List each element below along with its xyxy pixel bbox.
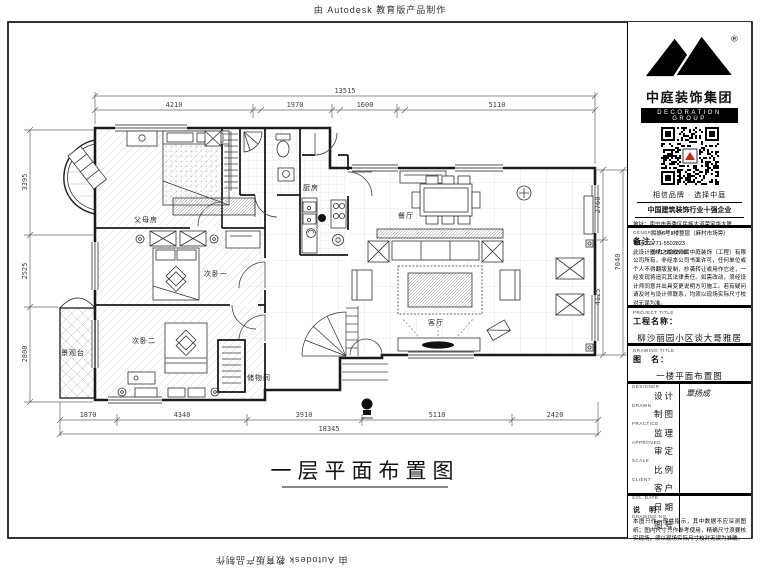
field-row-drawn: DRAWN制图: [628, 403, 751, 422]
field-label: 设计: [632, 390, 675, 402]
final-note-section: 说 明： 本图只作一般性指示，其中数据不应深测图纸；图内尺寸只作参考使用，精确尺…: [628, 496, 751, 547]
dim-right-0: 2760: [594, 197, 602, 214]
fields-section: DESIGNER设计 覃扬成 DRAWN制图 PRACTICE监理 APPROV…: [628, 384, 751, 496]
general-note-section: GENERAL NOTE 备注： 此设计图纸之版权归属中庭装饰（工程）有限公司所…: [628, 228, 751, 308]
drawing-title-section: DRAWING TITLE 图 名： 一楼平面布置图: [628, 346, 751, 384]
entry-plant-icon: [361, 399, 373, 419]
dim-left-2: 2800: [21, 346, 29, 363]
label-parents-room: 父母房: [134, 215, 158, 224]
dim-left-1: 2525: [21, 263, 29, 280]
field-row-client: CLIENT客户: [628, 477, 751, 496]
brand-section: ® 中庭装饰集团 DECORATION GROUP 相信品牌 · 选择中: [628, 22, 751, 228]
brand-logo-mountain-icon: ®: [642, 32, 738, 80]
brand-honor: 中国建筑装饰行业十强企业: [635, 203, 744, 218]
drawing-title-value: 一楼平面布置图: [633, 370, 746, 382]
dim-top-total: 13515: [334, 87, 355, 95]
plan-title-group: 一层平面布置图: [271, 459, 460, 487]
label-kitchen: 厨房: [303, 183, 319, 192]
brand-name: 中庭装饰集团: [633, 87, 746, 106]
field-label: 客户: [632, 482, 675, 494]
drawing-title-label: 图 名：: [633, 354, 746, 365]
label-deck: 景观台: [61, 348, 85, 357]
dim-left-0: 3395: [21, 174, 29, 191]
dim-bottom-2: 3910: [296, 411, 313, 419]
field-row-practice: PRACTICE监理: [628, 421, 751, 440]
svg-text:®: ®: [731, 34, 738, 44]
project-title-value: 柳沙丽园小区谈大哥雅居: [633, 332, 746, 344]
general-note-label: 备注：: [633, 236, 746, 247]
field-label: 比例: [632, 464, 675, 476]
dim-right-1: 4125: [594, 289, 602, 306]
project-title-section: PROJECT TITLE 工程名称： 柳沙丽园小区谈大哥雅居: [628, 308, 751, 346]
field-row-designer: DESIGNER设计 覃扬成: [628, 384, 751, 403]
dim-top-3: 5110: [489, 101, 506, 109]
dim-bottom-3: 5110: [429, 411, 446, 419]
dim-bottom-0: 1870: [80, 411, 97, 419]
dim-bottom-1: 4340: [174, 411, 191, 419]
dim-bottom-4: 2420: [547, 411, 564, 419]
project-title-label: 工程名称：: [633, 316, 746, 327]
brand-subtitle: DECORATION GROUP: [641, 108, 738, 123]
title-block: ® 中庭装饰集团 DECORATION GROUP 相信品牌 · 选择中: [627, 22, 751, 538]
label-bed1: 次卧一: [204, 269, 228, 278]
brand-tagline: 相信品牌 · 选择中庭: [637, 188, 742, 203]
final-note-label: 说 明：: [633, 507, 665, 514]
field-label: 审定: [632, 445, 675, 457]
dim-right-total: 7040: [614, 254, 622, 271]
floor-hatching: [60, 130, 593, 398]
field-label: 制图: [632, 408, 675, 420]
dim-bottom-total: 18345: [318, 425, 339, 433]
final-note-text: 本图只作一般性指示，其中数据不应深测图纸；图内尺寸只作参考使用，精确尺寸须要核实…: [633, 518, 746, 544]
field-value-designer: 覃扬成: [680, 388, 751, 399]
label-bed2: 次卧二: [132, 336, 156, 345]
field-label: 监理: [632, 427, 675, 439]
general-note-text: 此设计图纸之版权归属中庭装饰（工程）有限公司所有，非经本公司书面许可，任何单位或…: [633, 249, 746, 309]
label-dining: 餐厅: [398, 211, 414, 220]
qr-code: [661, 127, 719, 185]
dim-top-1: 1970: [287, 101, 304, 109]
plan-title: 一层平面布置图: [271, 459, 460, 483]
label-storage: 储物间: [247, 373, 271, 382]
field-row-scale: SCALE比例: [628, 458, 751, 477]
dim-top-2: 1600: [357, 101, 374, 109]
dim-top-0: 4210: [166, 101, 183, 109]
field-row-approved: APPROVED审定: [628, 440, 751, 459]
label-living: 客厅: [428, 318, 444, 327]
